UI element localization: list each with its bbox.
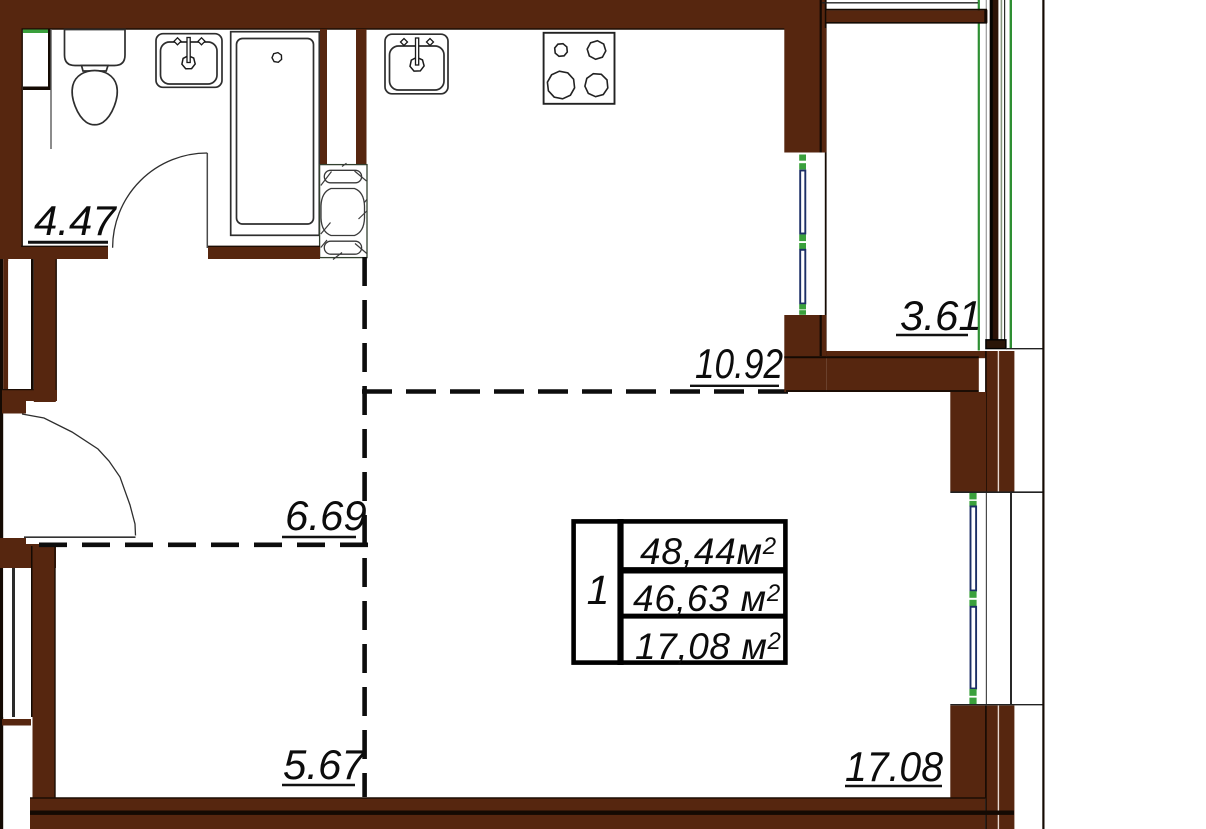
svg-text:17.08: 17.08 [845,743,944,790]
svg-text:1: 1 [587,567,610,613]
svg-text:3.61: 3.61 [900,292,982,339]
svg-text:46,63 м2: 46,63 м2 [633,578,781,619]
svg-text:5.67: 5.67 [283,741,366,788]
svg-text:10.92: 10.92 [695,340,783,387]
svg-text:4.47: 4.47 [34,197,117,244]
svg-text:48,44м2: 48,44м2 [640,531,777,572]
svg-text:17,08 м2: 17,08 м2 [635,626,781,667]
svg-text:6.69: 6.69 [285,492,367,539]
